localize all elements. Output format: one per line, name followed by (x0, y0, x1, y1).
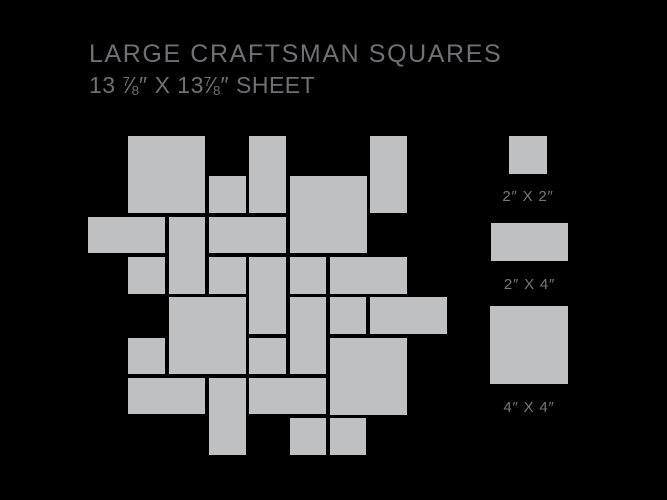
pattern-tile-2x2 (209, 176, 246, 213)
pattern-tile-2x4 (249, 136, 286, 213)
pattern-tile-2x2 (249, 338, 286, 375)
fraction-seven-eighths: 7⁄8 (122, 72, 139, 99)
fraction-seven-eighths: 7⁄8 (204, 72, 221, 99)
pattern-tile-4x4 (330, 338, 407, 415)
pattern-tile-2x2 (290, 418, 327, 455)
pattern-tile-2x4 (290, 297, 327, 374)
legend-label-2x4: 2″ X 4″ (460, 276, 600, 293)
pattern-tile-2x4 (330, 257, 407, 294)
pattern-tile-2x4 (88, 217, 165, 254)
pattern-tile-2x4 (249, 257, 286, 334)
sheet-size-part2: ″ X 13 (139, 72, 204, 98)
pattern-tile-2x4 (249, 378, 326, 415)
legend-swatch-2x2 (509, 136, 547, 174)
sheet-size-part1: 13 (89, 72, 122, 98)
pattern-tile-2x4 (370, 297, 447, 334)
pattern-tile-2x4 (128, 378, 205, 415)
page-title: LARGE CRAFTSMAN SQUARES (89, 40, 502, 69)
pattern-tile-2x2 (330, 418, 367, 455)
pattern-tile-2x4 (209, 378, 246, 455)
pattern-tile-4x4 (128, 136, 205, 213)
pattern-tile-4x4 (290, 176, 367, 253)
pattern-tile-2x4 (209, 217, 286, 254)
legend-swatch-2x4 (491, 223, 568, 261)
pattern-tile-2x2 (128, 338, 165, 375)
spec-sheet: LARGE CRAFTSMAN SQUARES 13 7⁄8″ X 137⁄8″… (0, 0, 667, 500)
legend-label-4x4: 4″ X 4″ (459, 399, 599, 416)
pattern-tile-2x2 (330, 297, 367, 334)
pattern-tile-2x2 (290, 257, 327, 294)
legend-label-2x2: 2″ X 2″ (458, 188, 598, 205)
pattern-tile-2x4 (169, 217, 206, 294)
legend-swatch-4x4 (490, 306, 568, 384)
pattern-tile-2x2 (209, 257, 246, 294)
sheet-size-text: 13 7⁄8″ X 137⁄8″ SHEET (89, 72, 315, 99)
pattern-tile-4x4 (169, 297, 246, 374)
pattern-tile-2x2 (128, 257, 165, 294)
pattern-tile-2x4 (370, 136, 407, 213)
sheet-size-part3: ″ SHEET (220, 72, 315, 98)
